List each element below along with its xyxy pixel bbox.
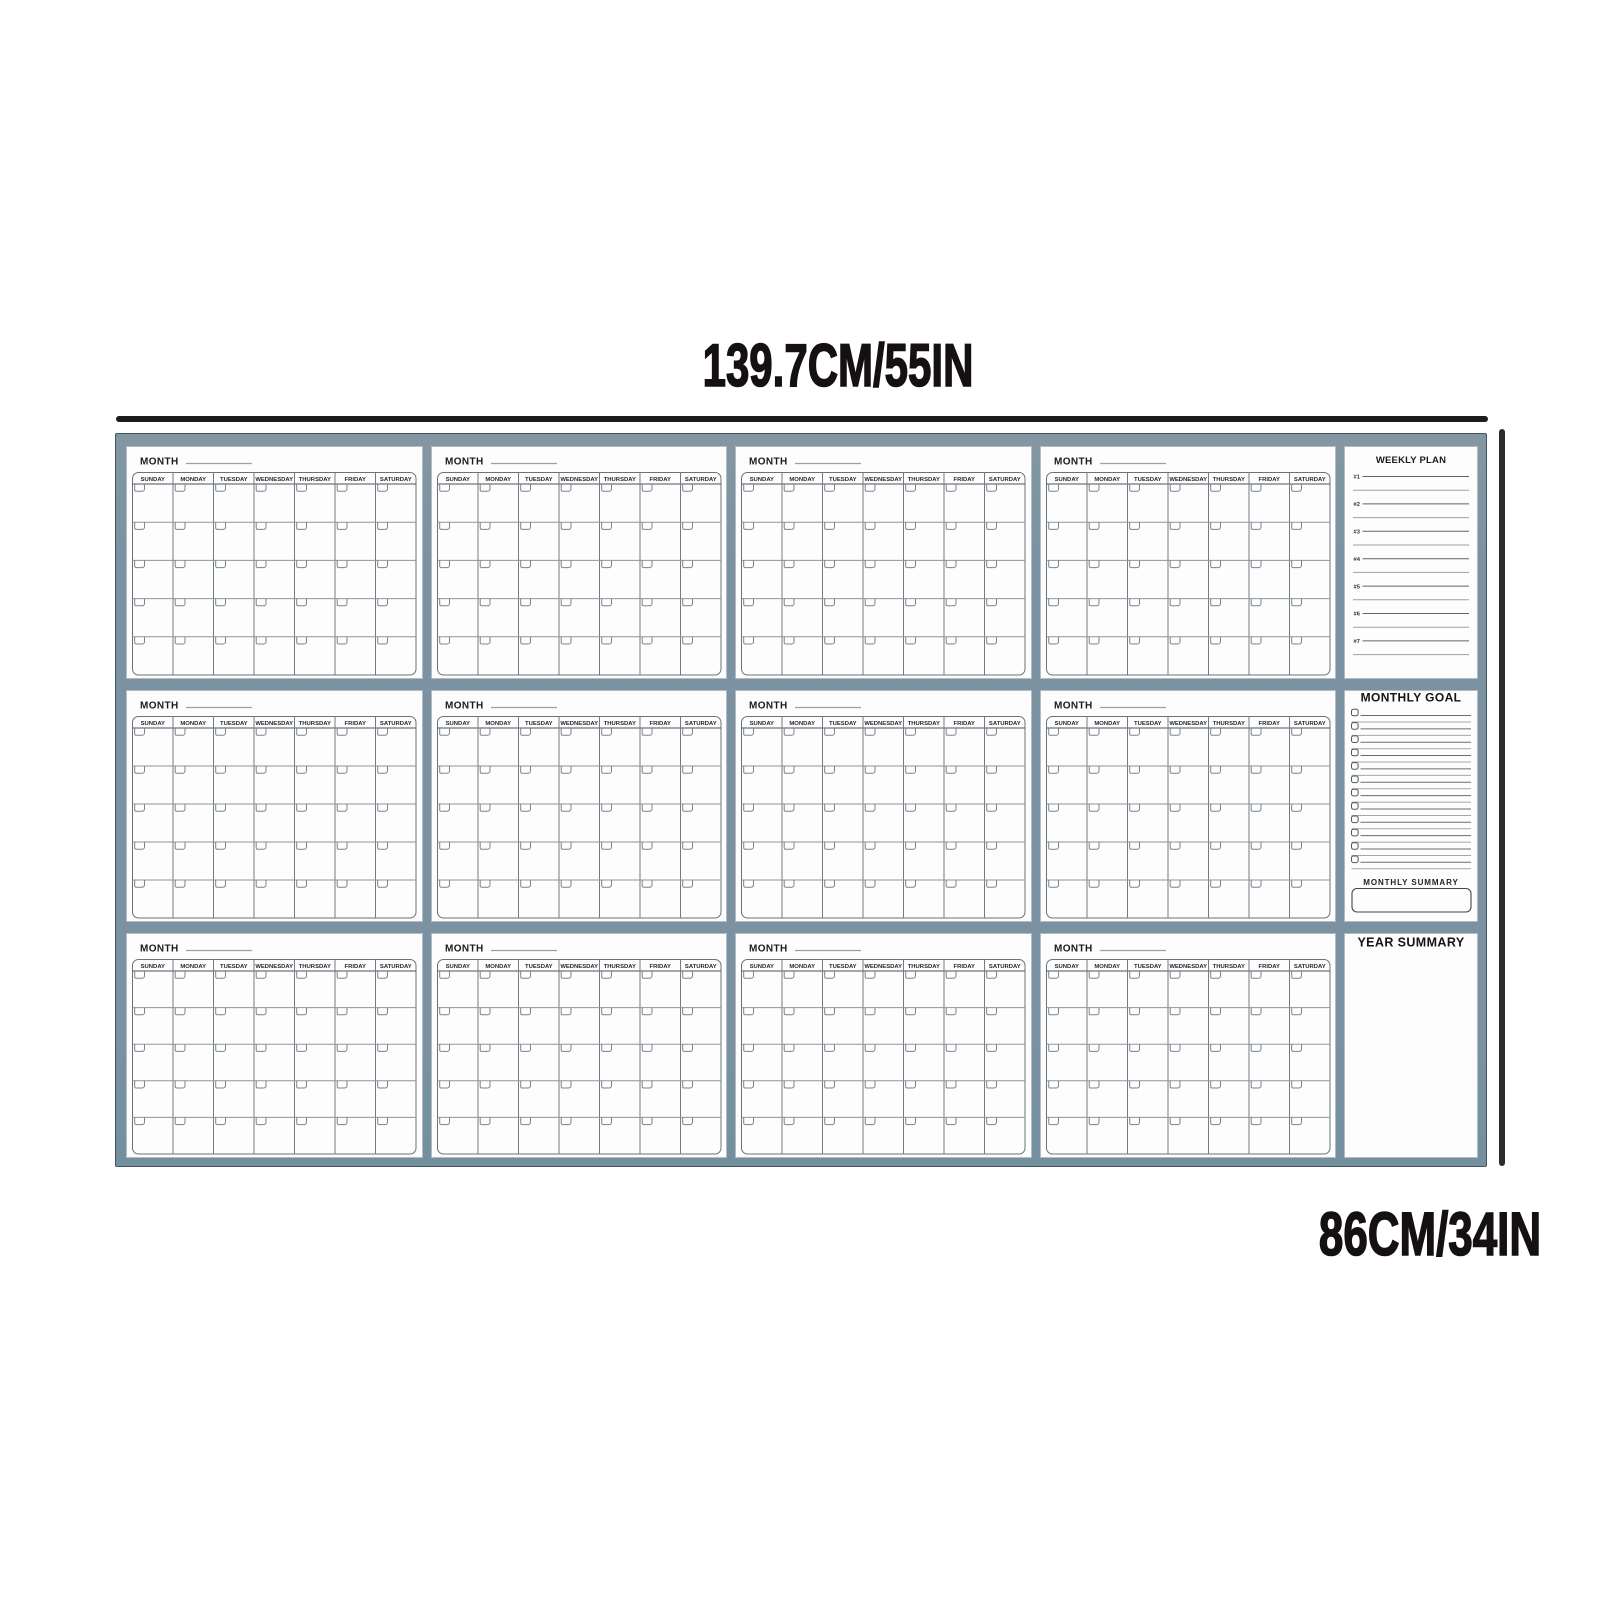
svg-text:FRIDAY: FRIDAY bbox=[954, 721, 975, 727]
svg-text:TUESDAY: TUESDAY bbox=[829, 477, 857, 483]
svg-text:MONTH: MONTH bbox=[445, 457, 484, 468]
svg-text:#4: #4 bbox=[1354, 557, 1361, 563]
svg-text:TUESDAY: TUESDAY bbox=[524, 721, 552, 727]
svg-text:SUNDAY: SUNDAY bbox=[141, 964, 165, 970]
svg-text:SATURDAY: SATURDAY bbox=[684, 964, 716, 970]
svg-text:THURSDAY: THURSDAY bbox=[1212, 477, 1244, 483]
svg-text:FRIDAY: FRIDAY bbox=[1258, 964, 1279, 970]
svg-text:MONDAY: MONDAY bbox=[180, 721, 206, 727]
svg-text:SATURDAY: SATURDAY bbox=[989, 721, 1021, 727]
svg-text:MONDAY: MONDAY bbox=[1094, 964, 1120, 970]
svg-text:SUNDAY: SUNDAY bbox=[1054, 477, 1078, 483]
svg-text:SATURDAY: SATURDAY bbox=[684, 721, 716, 727]
svg-text:FRIDAY: FRIDAY bbox=[1258, 477, 1279, 483]
svg-text:TUESDAY: TUESDAY bbox=[1133, 964, 1161, 970]
svg-text:WEDNESDAY: WEDNESDAY bbox=[255, 721, 293, 727]
svg-text:MONDAY: MONDAY bbox=[180, 477, 206, 483]
svg-text:THURSDAY: THURSDAY bbox=[299, 721, 331, 727]
svg-text:MONTH: MONTH bbox=[445, 701, 484, 712]
svg-text:WEDNESDAY: WEDNESDAY bbox=[560, 477, 598, 483]
svg-text:THURSDAY: THURSDAY bbox=[603, 477, 635, 483]
svg-text:FRIDAY: FRIDAY bbox=[345, 721, 366, 727]
svg-text:MONTH: MONTH bbox=[749, 701, 788, 712]
svg-text:THURSDAY: THURSDAY bbox=[603, 964, 635, 970]
svg-text:SUNDAY: SUNDAY bbox=[1054, 964, 1078, 970]
svg-text:SATURDAY: SATURDAY bbox=[684, 477, 716, 483]
svg-text:TUESDAY: TUESDAY bbox=[829, 721, 857, 727]
svg-text:SATURDAY: SATURDAY bbox=[380, 477, 412, 483]
svg-text:TUESDAY: TUESDAY bbox=[1133, 721, 1161, 727]
svg-text:SUNDAY: SUNDAY bbox=[750, 477, 774, 483]
svg-text:WEDNESDAY: WEDNESDAY bbox=[1169, 721, 1207, 727]
svg-text:SUNDAY: SUNDAY bbox=[750, 721, 774, 727]
svg-text:SUNDAY: SUNDAY bbox=[445, 477, 469, 483]
svg-text:TUESDAY: TUESDAY bbox=[220, 477, 248, 483]
svg-text:#5: #5 bbox=[1354, 584, 1361, 590]
svg-text:MONDAY: MONDAY bbox=[789, 964, 815, 970]
svg-text:MONTHLY SUMMARY: MONTHLY SUMMARY bbox=[1363, 878, 1458, 887]
svg-text:SATURDAY: SATURDAY bbox=[1293, 721, 1325, 727]
svg-text:WEDNESDAY: WEDNESDAY bbox=[255, 477, 293, 483]
svg-text:MONDAY: MONDAY bbox=[1094, 721, 1120, 727]
svg-text:MONTH: MONTH bbox=[749, 457, 788, 468]
svg-text:#6: #6 bbox=[1354, 612, 1361, 618]
svg-text:FRIDAY: FRIDAY bbox=[345, 477, 366, 483]
svg-text:THURSDAY: THURSDAY bbox=[908, 964, 940, 970]
svg-text:MONDAY: MONDAY bbox=[485, 477, 511, 483]
svg-text:#7: #7 bbox=[1354, 639, 1360, 645]
svg-text:THURSDAY: THURSDAY bbox=[1212, 964, 1244, 970]
svg-text:TUESDAY: TUESDAY bbox=[524, 964, 552, 970]
svg-text:WEEKLY PLAN: WEEKLY PLAN bbox=[1376, 455, 1446, 466]
svg-text:FRIDAY: FRIDAY bbox=[649, 721, 670, 727]
svg-text:MONTH: MONTH bbox=[140, 944, 179, 955]
svg-text:MONDAY: MONDAY bbox=[789, 721, 815, 727]
svg-text:SATURDAY: SATURDAY bbox=[380, 721, 412, 727]
svg-text:TUESDAY: TUESDAY bbox=[524, 477, 552, 483]
svg-text:FRIDAY: FRIDAY bbox=[649, 964, 670, 970]
svg-text:WEDNESDAY: WEDNESDAY bbox=[255, 964, 293, 970]
svg-text:MONDAY: MONDAY bbox=[180, 964, 206, 970]
svg-text:MONTH: MONTH bbox=[445, 944, 484, 955]
svg-text:THURSDAY: THURSDAY bbox=[299, 964, 331, 970]
svg-text:FRIDAY: FRIDAY bbox=[345, 964, 366, 970]
svg-text:MONDAY: MONDAY bbox=[789, 477, 815, 483]
svg-text:MONTH: MONTH bbox=[140, 701, 179, 712]
svg-text:WEDNESDAY: WEDNESDAY bbox=[1169, 964, 1207, 970]
svg-text:SATURDAY: SATURDAY bbox=[989, 477, 1021, 483]
svg-text:MONDAY: MONDAY bbox=[485, 964, 511, 970]
svg-text:SATURDAY: SATURDAY bbox=[1293, 477, 1325, 483]
svg-text:MONTH: MONTH bbox=[1054, 944, 1093, 955]
svg-text:WEDNESDAY: WEDNESDAY bbox=[864, 721, 902, 727]
svg-text:SUNDAY: SUNDAY bbox=[141, 477, 165, 483]
svg-text:MONTHLY GOAL: MONTHLY GOAL bbox=[1361, 691, 1462, 705]
svg-text:#3: #3 bbox=[1354, 530, 1361, 536]
svg-text:#1: #1 bbox=[1354, 475, 1361, 481]
svg-text:THURSDAY: THURSDAY bbox=[1212, 721, 1244, 727]
svg-text:#2: #2 bbox=[1354, 502, 1360, 508]
svg-text:TUESDAY: TUESDAY bbox=[220, 964, 248, 970]
svg-text:WEDNESDAY: WEDNESDAY bbox=[864, 477, 902, 483]
svg-text:MONTH: MONTH bbox=[140, 457, 179, 468]
svg-text:WEDNESDAY: WEDNESDAY bbox=[1169, 477, 1207, 483]
svg-text:TUESDAY: TUESDAY bbox=[1133, 477, 1161, 483]
svg-text:WEDNESDAY: WEDNESDAY bbox=[560, 721, 598, 727]
svg-text:FRIDAY: FRIDAY bbox=[954, 477, 975, 483]
svg-text:THURSDAY: THURSDAY bbox=[908, 721, 940, 727]
svg-text:MONDAY: MONDAY bbox=[485, 721, 511, 727]
svg-text:FRIDAY: FRIDAY bbox=[1258, 721, 1279, 727]
svg-text:THURSDAY: THURSDAY bbox=[299, 477, 331, 483]
svg-text:TUESDAY: TUESDAY bbox=[829, 964, 857, 970]
svg-text:SUNDAY: SUNDAY bbox=[445, 721, 469, 727]
svg-text:SUNDAY: SUNDAY bbox=[1054, 721, 1078, 727]
svg-text:THURSDAY: THURSDAY bbox=[908, 477, 940, 483]
svg-text:YEAR SUMMARY: YEAR SUMMARY bbox=[1357, 936, 1464, 950]
svg-text:SATURDAY: SATURDAY bbox=[380, 964, 412, 970]
svg-text:THURSDAY: THURSDAY bbox=[603, 721, 635, 727]
svg-text:WEDNESDAY: WEDNESDAY bbox=[560, 964, 598, 970]
svg-text:MONTH: MONTH bbox=[749, 944, 788, 955]
svg-text:TUESDAY: TUESDAY bbox=[220, 721, 248, 727]
svg-text:SUNDAY: SUNDAY bbox=[445, 964, 469, 970]
svg-text:FRIDAY: FRIDAY bbox=[649, 477, 670, 483]
svg-text:SATURDAY: SATURDAY bbox=[989, 964, 1021, 970]
svg-text:FRIDAY: FRIDAY bbox=[954, 964, 975, 970]
svg-text:MONTH: MONTH bbox=[1054, 701, 1093, 712]
svg-text:WEDNESDAY: WEDNESDAY bbox=[864, 964, 902, 970]
svg-text:SUNDAY: SUNDAY bbox=[750, 964, 774, 970]
svg-text:MONDAY: MONDAY bbox=[1094, 477, 1120, 483]
svg-text:MONTH: MONTH bbox=[1054, 457, 1093, 468]
svg-text:SATURDAY: SATURDAY bbox=[1293, 964, 1325, 970]
svg-text:SUNDAY: SUNDAY bbox=[141, 721, 165, 727]
